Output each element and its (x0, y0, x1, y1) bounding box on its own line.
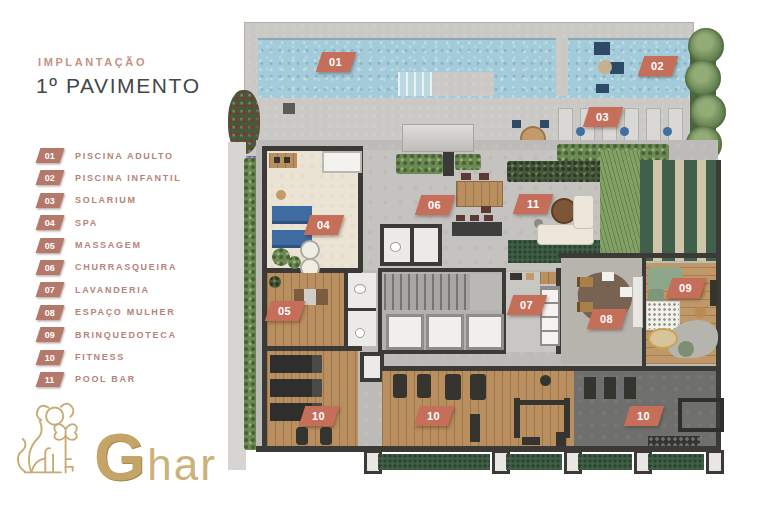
legend-badge: 05 (36, 238, 65, 253)
planter-hedge-dark (507, 161, 608, 182)
pergola (640, 160, 717, 261)
laundry-shelf (526, 273, 534, 280)
page-title: 1º PAVIMENTO (36, 74, 201, 98)
stair-landing (470, 274, 502, 310)
side-table (620, 287, 632, 297)
planting-strip (648, 454, 704, 470)
legend: 01PISCINA ADULTO 02PISCINA INFANTIL 03SO… (38, 148, 181, 387)
massage-table-sheet (304, 289, 316, 305)
pillar (706, 450, 724, 474)
legend-item-10: 10FITNESS (38, 350, 181, 365)
legend-badge: 09 (36, 327, 65, 342)
planting-strip (506, 454, 562, 470)
spa-side-table (276, 190, 286, 200)
playroom-sofa-chaise (648, 289, 664, 301)
toilet-icon (354, 284, 366, 294)
planter-hedge (396, 154, 443, 174)
legend-label: SOLARIUM (75, 195, 137, 205)
bbq-chair (481, 206, 491, 213)
plan-badge-11: 11 (513, 194, 553, 214)
playroom-shelf (710, 280, 717, 306)
legend-badge: 04 (36, 215, 65, 230)
legend-label: PISCINA ADULTO (75, 151, 174, 161)
bbq-counter (452, 222, 502, 236)
plan-badge-01: 01 (316, 52, 356, 72)
plan-badge-10-right: 10 (624, 406, 664, 426)
treadmill (270, 379, 322, 397)
massage-plant (269, 276, 281, 288)
brand-logo: G har (14, 392, 217, 484)
dining-chair (512, 120, 521, 128)
legend-item-08: 08ESPAÇO MULHER (38, 305, 181, 320)
kettlebells (522, 437, 540, 445)
plan-badge-06: 06 (415, 195, 455, 215)
legend-label: MASSAGEM (75, 240, 142, 250)
legend-label: LAVANDERIA (75, 285, 150, 295)
elevator-car (466, 314, 504, 350)
legend-item-05: 05MASSAGEM (38, 238, 181, 253)
legend-label: FITNESS (75, 352, 125, 362)
functional-rack-post (514, 398, 520, 438)
legend-label: ESPAÇO MULHER (75, 307, 175, 317)
plan-badge-05: 05 (265, 301, 305, 321)
gym-machine (470, 374, 486, 400)
side-chair (602, 272, 614, 281)
solarium-side-table (663, 127, 672, 136)
stairs (384, 274, 470, 310)
gym-bench (624, 377, 636, 399)
legend-label: POOL BAR (75, 374, 136, 384)
legend-badge: 11 (36, 372, 65, 387)
treadmill (270, 355, 322, 373)
laundry-counter (540, 272, 556, 284)
gym-bench (584, 377, 596, 399)
legend-label: PISCINA INFANTIL (75, 173, 181, 183)
plan-badge-03: 03 (583, 107, 623, 127)
armchair (577, 302, 593, 312)
kids-pool-lounger (610, 62, 624, 74)
exercise-bike (320, 427, 332, 445)
wall-ball (540, 375, 551, 386)
legend-item-07: 07LAVANDERIA (38, 282, 181, 297)
bbq-chair (479, 173, 489, 180)
armchair (577, 277, 593, 287)
spa-closet (322, 151, 362, 173)
legend-item-03: 03SOLARIUM (38, 193, 181, 208)
dumbbell-rack (648, 436, 700, 446)
palm-tree-icon (685, 60, 721, 96)
palm-tree-icon (690, 94, 726, 130)
logo-wordmark: har (147, 447, 217, 484)
lion-key-logo-icon (14, 392, 100, 484)
gym-machine (445, 374, 461, 400)
pool-equipment-box (283, 103, 295, 114)
spa-tub (300, 240, 320, 260)
pool-divider (556, 38, 568, 96)
legend-item-01: 01PISCINA ADULTO (38, 148, 181, 163)
solarium-side-table (620, 127, 629, 136)
plan-badge-09: 09 (666, 278, 706, 298)
legend-badge: 01 (36, 148, 65, 163)
plan-badge-10-left: 10 (299, 406, 339, 426)
elevator-car (386, 314, 424, 350)
bathroom-divider (348, 308, 376, 311)
exercise-bike (296, 427, 308, 445)
sink-icon (355, 328, 365, 338)
legend-item-11: 11POOL BAR (38, 372, 181, 387)
pool-steps (398, 72, 432, 96)
plan-badge-04: 04 (304, 215, 344, 235)
gym-bench (556, 432, 566, 446)
spa-lounger (272, 206, 312, 224)
planter-hedge (455, 154, 481, 170)
legend-badge: 10 (36, 350, 65, 365)
gym-bench (604, 377, 616, 399)
functional-rack-bar (514, 400, 570, 405)
cable-tower (470, 414, 480, 442)
spa-sink (284, 157, 290, 163)
dining-chair (540, 120, 549, 128)
legend-badge: 03 (36, 193, 65, 208)
bbq-table (456, 181, 503, 207)
legend-label: CHURRASQUEIRA (75, 262, 177, 272)
fitness-wc-floor (364, 356, 380, 378)
kids-pool-lounger (594, 42, 610, 55)
planting-strip (378, 454, 490, 470)
legend-item-02: 02PISCINA INFANTIL (38, 170, 181, 185)
kids-stool (695, 307, 706, 318)
plan-badge-07: 07 (507, 295, 547, 315)
spa-sink (274, 157, 280, 163)
logo-monogram: G (94, 431, 145, 484)
bbq-stool (456, 215, 465, 221)
palm-tree-icon (688, 28, 724, 64)
page: 01 02 03 04 05 06 07 08 09 10 10 10 11 I… (0, 0, 768, 519)
legend-label: BRINQUEDOTECA (75, 330, 177, 340)
skylight-panel (402, 124, 474, 152)
legend-badge: 07 (36, 282, 65, 297)
legend-badge: 02 (36, 170, 65, 185)
terrace-wc-divider (410, 228, 414, 262)
legend-item-06: 06CHURRASQUEIRA (38, 260, 181, 275)
playroom-rug (646, 301, 680, 330)
legend-item-04: 04SPA (38, 215, 181, 230)
bbq-chair (461, 173, 471, 180)
toilet-icon (390, 242, 401, 252)
gym-machine (417, 374, 431, 398)
garden-grass (600, 150, 640, 262)
kids-pool-lounger (596, 84, 609, 93)
squat-rack (678, 398, 724, 432)
bbq-stool (484, 215, 493, 221)
plan-badge-10-center: 10 (414, 406, 454, 426)
gym-machine (393, 374, 407, 398)
plan-eyebrow: IMPLANTAÇÃO (38, 56, 147, 68)
kids-pool-table (598, 60, 612, 74)
elevator-car (426, 314, 464, 350)
planter-pillar (443, 152, 454, 176)
legend-item-09: 09BRINQUEDOTECA (38, 327, 181, 342)
console (632, 276, 643, 328)
playroom-plant (678, 341, 694, 357)
pool-bar-sofa (573, 195, 594, 229)
plan-badge-08: 08 (587, 309, 627, 329)
legend-badge: 08 (36, 305, 65, 320)
ball-pit (648, 328, 678, 349)
laundry-shelf (510, 273, 522, 280)
spa-plant (288, 256, 301, 269)
legend-label: SPA (75, 218, 98, 228)
solarium-side-table (576, 127, 585, 136)
bbq-stool (470, 215, 479, 221)
plan-badge-02: 02 (638, 56, 678, 76)
planting-strip (578, 454, 632, 470)
legend-badge: 06 (36, 260, 65, 275)
